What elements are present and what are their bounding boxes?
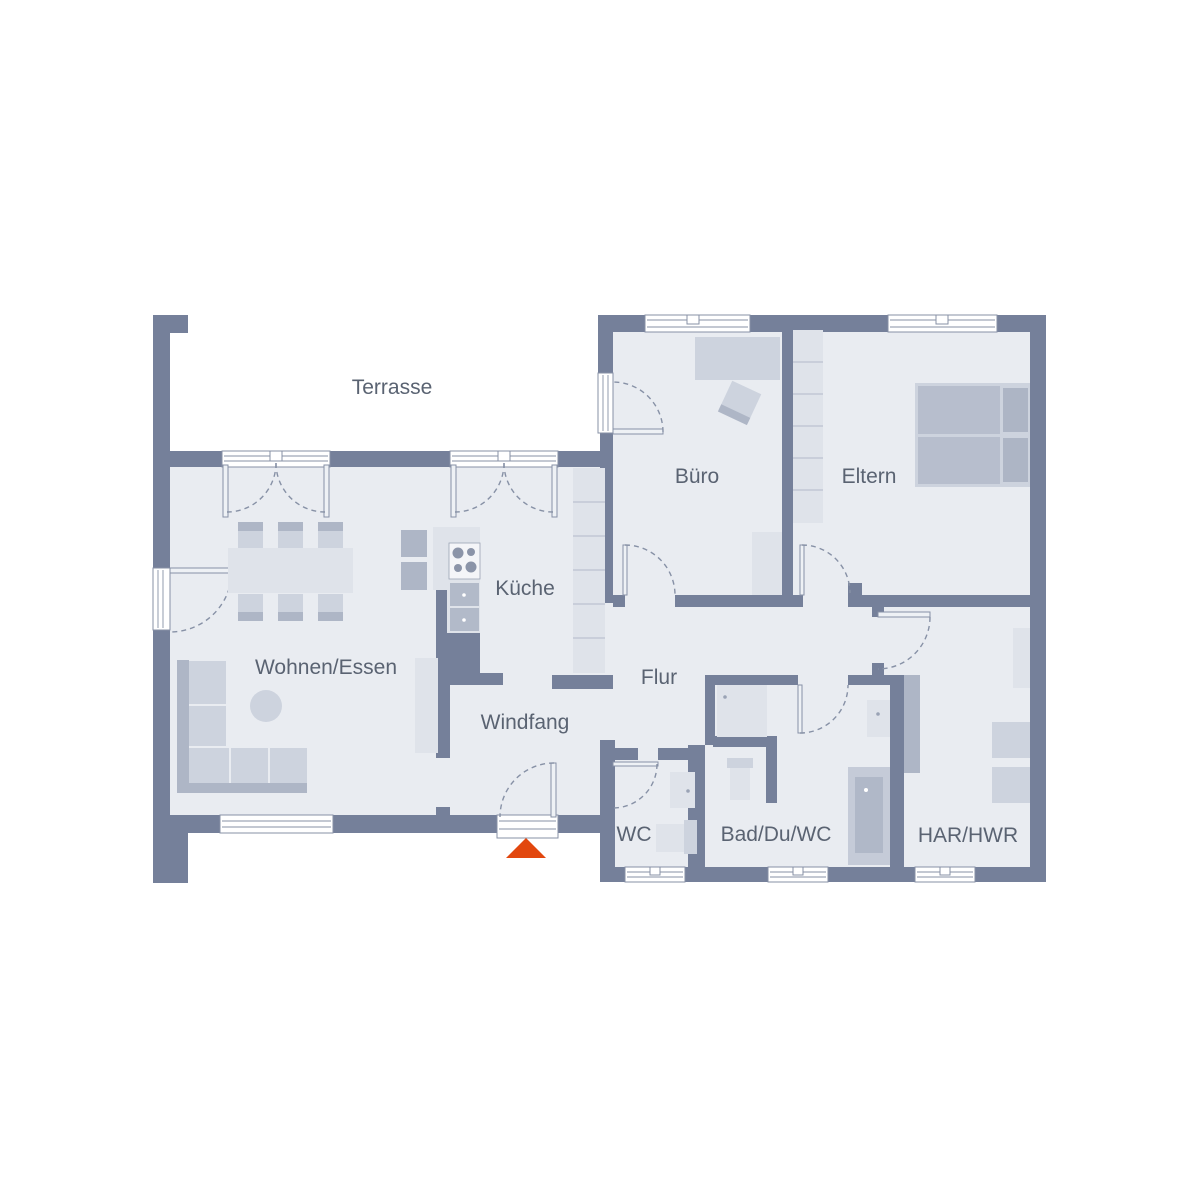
eltern-window <box>888 315 997 332</box>
wardrobe <box>793 330 823 523</box>
bad-toilet <box>730 768 750 800</box>
wc-window <box>625 867 685 882</box>
label-wohnen-essen: Wohnen/Essen <box>255 656 397 679</box>
bad-basin-2 <box>867 700 890 737</box>
har-cabinet <box>904 675 920 773</box>
label-bad: Bad/Du/WC <box>721 823 832 846</box>
label-windfang: Windfang <box>481 711 570 734</box>
kitchen-tall-cabinets <box>573 468 605 673</box>
desk <box>695 337 780 380</box>
bad-window <box>768 867 828 882</box>
floor-plan: Terrasse Wohnen/Essen Küche Windfang Flu… <box>0 0 1200 1200</box>
coffee-table <box>250 690 282 722</box>
label-buero: Büro <box>675 465 719 488</box>
buero-cabinet <box>752 532 782 595</box>
label-flur: Flur <box>641 666 677 689</box>
floor-plan-svg: Terrasse Wohnen/Essen Küche Windfang Flu… <box>0 0 1200 1200</box>
washer <box>992 722 1030 758</box>
label-eltern: Eltern <box>842 465 897 488</box>
living-window <box>220 815 333 833</box>
dining-table <box>228 548 353 593</box>
wc-sink <box>670 772 695 808</box>
wc-toilet <box>656 824 684 852</box>
har-window <box>915 867 975 882</box>
sideboard <box>415 658 438 753</box>
dryer <box>992 767 1030 803</box>
stove <box>449 543 480 579</box>
label-wc: WC <box>617 823 652 846</box>
entrance-arrow <box>506 838 546 858</box>
dining-set <box>228 522 353 621</box>
bad-washbasin <box>717 685 767 737</box>
har-shelf <box>1013 628 1030 688</box>
label-har-hwr: HAR/HWR <box>918 824 1018 847</box>
label-terrasse: Terrasse <box>352 376 433 399</box>
shower <box>848 767 890 865</box>
label-kueche: Küche <box>495 577 555 600</box>
double-bed <box>915 383 1030 487</box>
buero-window <box>645 315 750 332</box>
